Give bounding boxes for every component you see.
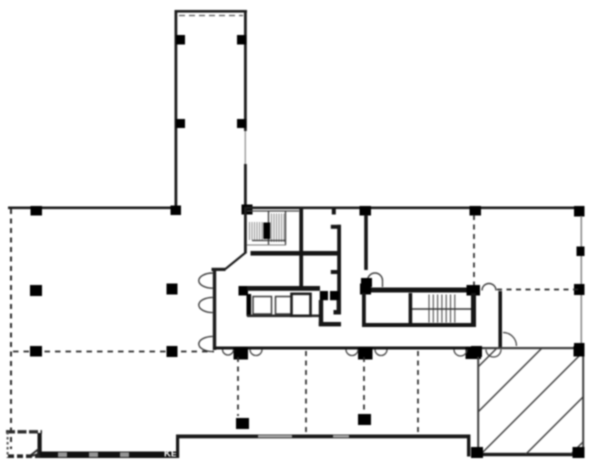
svg-text:KE: KE xyxy=(164,449,177,460)
